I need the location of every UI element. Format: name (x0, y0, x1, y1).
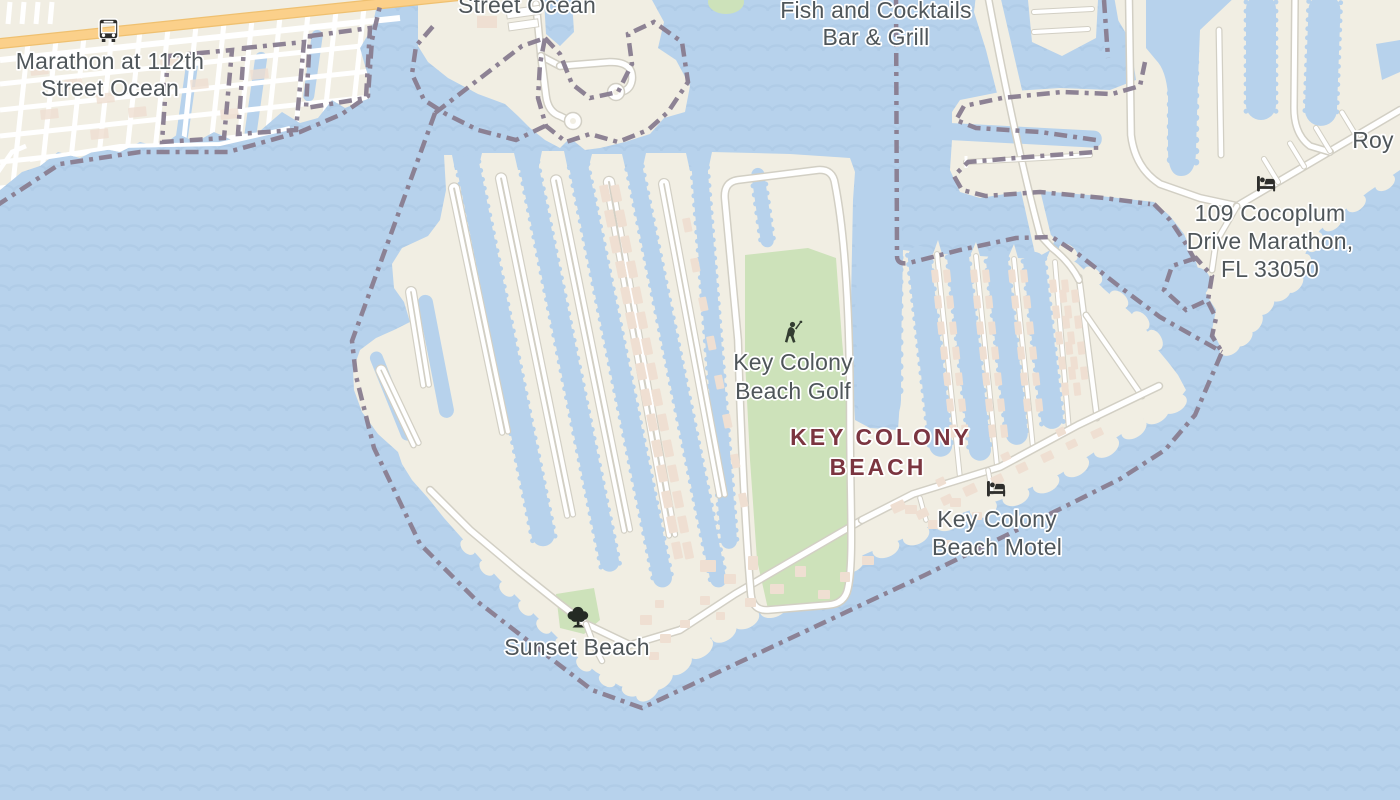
svg-text:Marathon at 112th: Marathon at 112th (16, 48, 204, 74)
svg-text:Key Colony: Key Colony (733, 349, 853, 375)
svg-text:BEACH: BEACH (830, 454, 927, 480)
svg-text:Drive Marathon,: Drive Marathon, (1187, 228, 1354, 254)
svg-text:KEY COLONY: KEY COLONY (790, 424, 972, 450)
svg-text:Beach Golf: Beach Golf (735, 378, 851, 404)
svg-text:Fish and Cocktails: Fish and Cocktails (780, 0, 972, 23)
svg-text:Sunset Beach: Sunset Beach (504, 634, 650, 660)
svg-text:Bar & Grill: Bar & Grill (823, 24, 930, 50)
svg-text:Roy: Roy (1352, 127, 1394, 153)
svg-text:FL 33050: FL 33050 (1221, 256, 1319, 282)
svg-text:Beach Motel: Beach Motel (932, 534, 1062, 560)
svg-text:109 Cocoplum: 109 Cocoplum (1195, 200, 1346, 226)
svg-text:Key Colony: Key Colony (937, 506, 1057, 532)
svg-text:Street Ocean: Street Ocean (458, 0, 596, 18)
svg-text:Street Ocean: Street Ocean (41, 75, 179, 101)
